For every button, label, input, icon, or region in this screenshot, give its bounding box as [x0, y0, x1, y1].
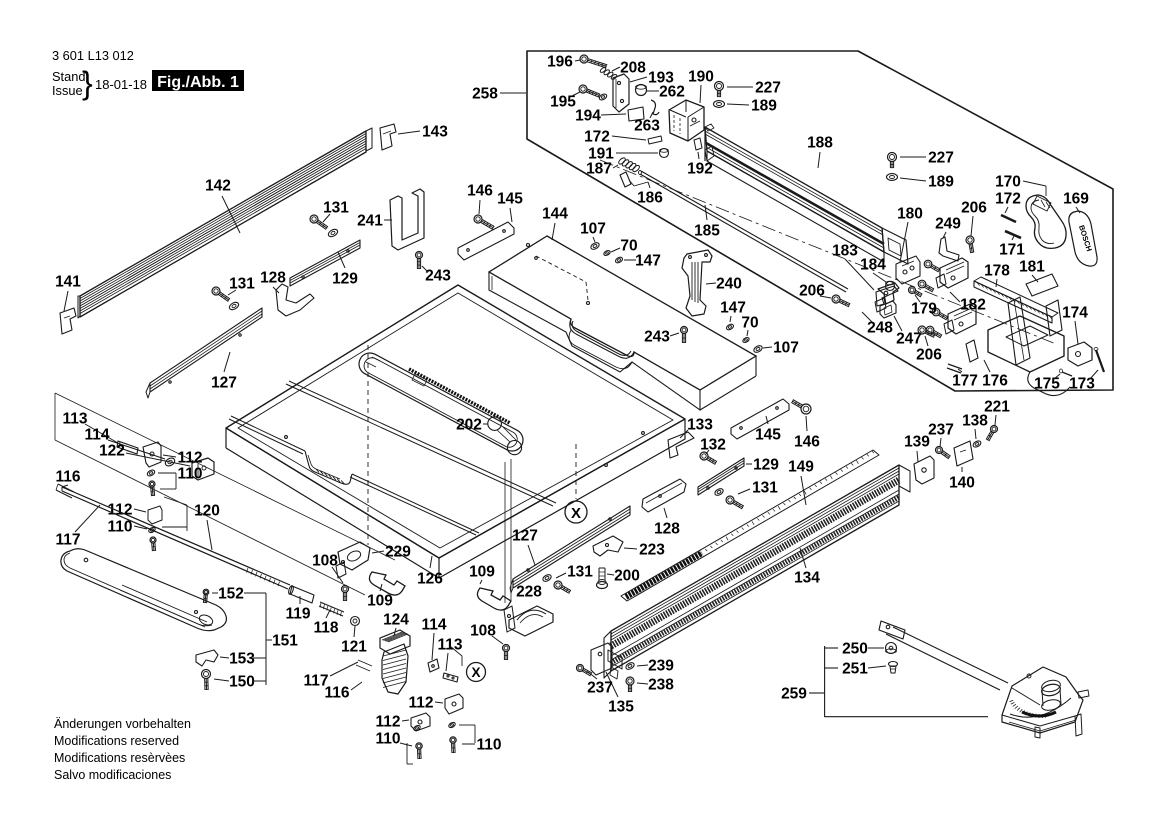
- svg-text:144: 144: [542, 206, 568, 223]
- svg-text:175: 175: [1034, 376, 1060, 393]
- svg-text:146: 146: [467, 183, 493, 200]
- svg-text:145: 145: [755, 427, 781, 444]
- svg-text:188: 188: [807, 135, 833, 152]
- svg-text:228: 228: [516, 584, 542, 601]
- svg-text:126: 126: [417, 571, 443, 588]
- svg-text:143: 143: [422, 124, 448, 141]
- svg-text:172: 172: [584, 129, 610, 146]
- svg-text:X: X: [571, 505, 581, 522]
- svg-text:135: 135: [608, 699, 634, 716]
- svg-text:110: 110: [107, 519, 132, 536]
- svg-text:70: 70: [741, 315, 758, 332]
- svg-text:134: 134: [794, 570, 820, 587]
- svg-text:117: 117: [55, 532, 80, 549]
- svg-text:127: 127: [512, 528, 538, 545]
- svg-text:243: 243: [644, 329, 670, 346]
- svg-text:189: 189: [928, 174, 954, 191]
- svg-text:3 601 L13 012: 3 601 L13 012: [52, 48, 134, 63]
- svg-text:107: 107: [773, 340, 799, 357]
- svg-text:121: 121: [341, 639, 367, 656]
- svg-text:151: 151: [272, 633, 298, 650]
- svg-text:128: 128: [260, 270, 286, 287]
- svg-text:153: 153: [229, 651, 255, 668]
- svg-text:129: 129: [332, 271, 358, 288]
- svg-text:142: 142: [205, 178, 231, 195]
- svg-text:131: 131: [323, 200, 349, 217]
- svg-text:186: 186: [637, 190, 663, 207]
- svg-text:239: 239: [648, 658, 674, 675]
- svg-text:250: 250: [842, 641, 868, 658]
- svg-text:131: 131: [752, 480, 778, 497]
- svg-text:109: 109: [469, 564, 495, 581]
- svg-text:184: 184: [860, 257, 886, 274]
- svg-text:146: 146: [794, 434, 820, 451]
- svg-text:Stand: Stand: [52, 69, 85, 84]
- svg-text:}: }: [82, 65, 93, 101]
- svg-text:116: 116: [55, 469, 80, 486]
- svg-text:172: 172: [995, 191, 1021, 208]
- svg-text:237: 237: [928, 422, 954, 439]
- svg-text:177: 177: [952, 373, 978, 390]
- svg-text:196: 196: [547, 54, 573, 71]
- svg-text:Modifications reserved: Modifications reserved: [54, 734, 179, 748]
- svg-text:Modifications resèrvèes: Modifications resèrvèes: [54, 751, 185, 765]
- svg-text:185: 185: [694, 223, 720, 240]
- svg-text:108: 108: [312, 553, 338, 570]
- svg-text:141: 141: [55, 274, 81, 291]
- svg-text:150: 150: [229, 674, 255, 691]
- svg-text:145: 145: [497, 191, 523, 208]
- svg-text:227: 227: [755, 80, 781, 97]
- svg-text:221: 221: [984, 399, 1010, 416]
- svg-text:147: 147: [635, 253, 661, 270]
- svg-text:259: 259: [781, 686, 807, 703]
- svg-text:200: 200: [614, 568, 640, 585]
- svg-text:116: 116: [324, 685, 349, 702]
- svg-text:249: 249: [935, 216, 961, 233]
- svg-text:124: 124: [383, 612, 409, 629]
- svg-text:Änderungen vorbehalten: Änderungen vorbehalten: [54, 717, 191, 731]
- svg-text:223: 223: [639, 542, 665, 559]
- svg-text:182: 182: [960, 297, 986, 314]
- svg-text:109: 109: [367, 593, 393, 610]
- svg-text:127: 127: [211, 375, 237, 392]
- svg-text:Salvo modificaciones: Salvo modificaciones: [54, 768, 171, 782]
- svg-text:X: X: [471, 665, 480, 680]
- svg-text:131: 131: [229, 276, 255, 293]
- svg-text:202: 202: [456, 417, 482, 434]
- svg-text:251: 251: [842, 661, 868, 678]
- svg-text:152: 152: [218, 586, 244, 603]
- svg-text:194: 194: [575, 108, 601, 125]
- svg-text:118: 118: [313, 620, 338, 637]
- svg-text:149: 149: [788, 459, 814, 476]
- svg-text:171: 171: [999, 242, 1025, 259]
- svg-text:139: 139: [904, 434, 930, 451]
- svg-text:206: 206: [961, 200, 987, 217]
- svg-text:18-01-18: 18-01-18: [95, 77, 147, 92]
- svg-text:114: 114: [421, 617, 446, 634]
- svg-text:262: 262: [659, 84, 685, 101]
- svg-text:122: 122: [99, 443, 125, 460]
- svg-text:227: 227: [928, 150, 954, 167]
- svg-text:114: 114: [84, 427, 109, 444]
- svg-text:247: 247: [896, 331, 922, 348]
- svg-text:119: 119: [285, 606, 310, 623]
- svg-text:206: 206: [799, 283, 825, 300]
- svg-text:110: 110: [476, 737, 501, 754]
- svg-text:112: 112: [375, 714, 400, 731]
- svg-text:110: 110: [177, 466, 202, 483]
- svg-text:Fig./Abb. 1: Fig./Abb. 1: [157, 74, 239, 91]
- svg-text:181: 181: [1019, 259, 1045, 276]
- svg-text:229: 229: [385, 544, 411, 561]
- svg-text:169: 169: [1063, 191, 1089, 208]
- svg-text:178: 178: [984, 263, 1010, 280]
- svg-text:Issue: Issue: [52, 83, 83, 98]
- svg-text:248: 248: [867, 320, 893, 337]
- svg-text:112: 112: [408, 695, 433, 712]
- svg-text:243: 243: [425, 268, 451, 285]
- svg-text:133: 133: [687, 417, 713, 434]
- svg-text:180: 180: [897, 206, 923, 223]
- svg-text:238: 238: [648, 677, 674, 694]
- svg-text:174: 174: [1062, 305, 1088, 322]
- svg-text:132: 132: [700, 437, 726, 454]
- svg-text:108: 108: [470, 623, 496, 640]
- svg-text:176: 176: [982, 373, 1008, 390]
- svg-text:206: 206: [916, 347, 942, 364]
- svg-text:113: 113: [62, 411, 87, 428]
- svg-text:263: 263: [634, 118, 660, 135]
- svg-text:131: 131: [567, 564, 593, 581]
- svg-text:241: 241: [357, 213, 383, 230]
- svg-text:128: 128: [654, 521, 680, 538]
- svg-text:120: 120: [194, 503, 220, 520]
- svg-text:237: 237: [587, 680, 613, 697]
- svg-text:170: 170: [995, 174, 1021, 191]
- svg-text:183: 183: [832, 243, 858, 260]
- svg-text:110: 110: [375, 731, 400, 748]
- svg-text:258: 258: [472, 86, 498, 103]
- svg-text:129: 129: [753, 457, 779, 474]
- svg-text:113: 113: [437, 637, 462, 654]
- svg-text:179: 179: [911, 301, 937, 318]
- svg-text:192: 192: [687, 161, 713, 178]
- svg-text:140: 140: [949, 475, 975, 492]
- svg-text:189: 189: [751, 98, 777, 115]
- svg-text:190: 190: [688, 69, 714, 86]
- svg-text:107: 107: [580, 221, 606, 238]
- svg-text:240: 240: [716, 276, 742, 293]
